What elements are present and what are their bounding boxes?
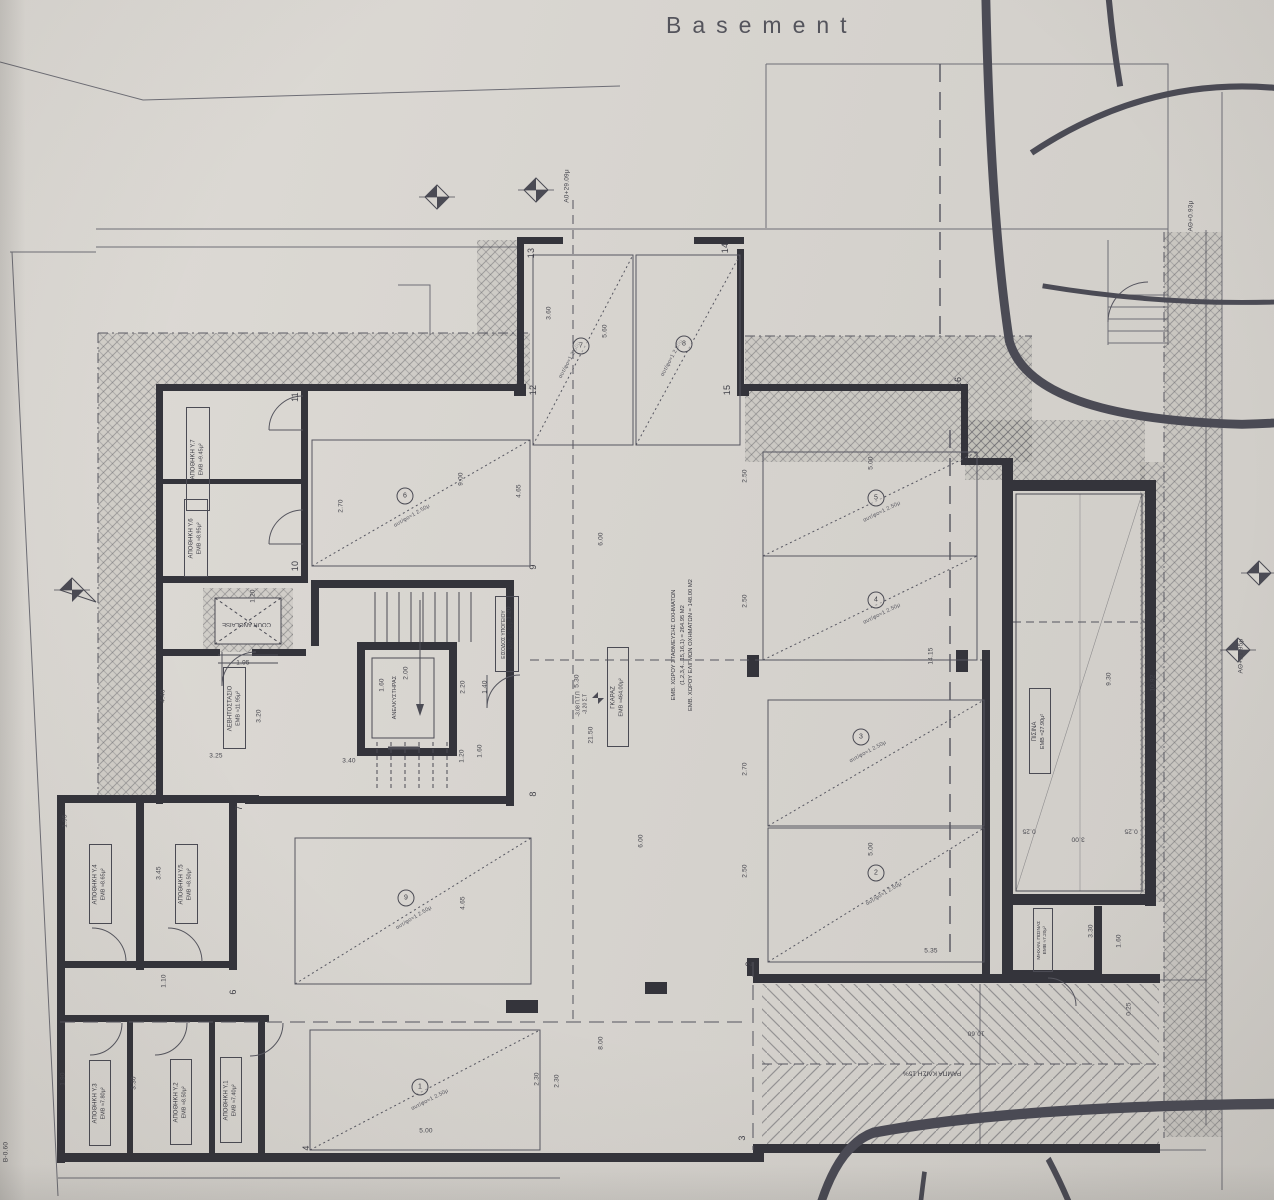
parking-number-bubble: 9 xyxy=(398,890,415,907)
parking-number-bubble: 7 xyxy=(573,338,590,355)
parking-number-bubble: 2 xyxy=(868,865,885,882)
parking-number-bubble: 8 xyxy=(676,336,693,353)
parking-number-bubble: 1 xyxy=(412,1079,429,1096)
parking-number-bubbles: 678543291 xyxy=(0,0,1274,1200)
parking-number-bubble: 6 xyxy=(397,488,414,505)
parking-number-bubble: 3 xyxy=(853,729,870,746)
labels-layer: Basement ΑΠΟΘΗΚΗ Υ.7 ΕΜΒ ≈9.45μ² ΑΠΟΘΗΚΗ… xyxy=(0,0,1274,1200)
parking-number-bubble: 4 xyxy=(868,592,885,609)
parking-number-bubble: 5 xyxy=(868,490,885,507)
scanned-floor-plan-sheet: Basement ΑΠΟΘΗΚΗ Υ.7 ΕΜΒ ≈9.45μ² ΑΠΟΘΗΚΗ… xyxy=(0,0,1274,1200)
